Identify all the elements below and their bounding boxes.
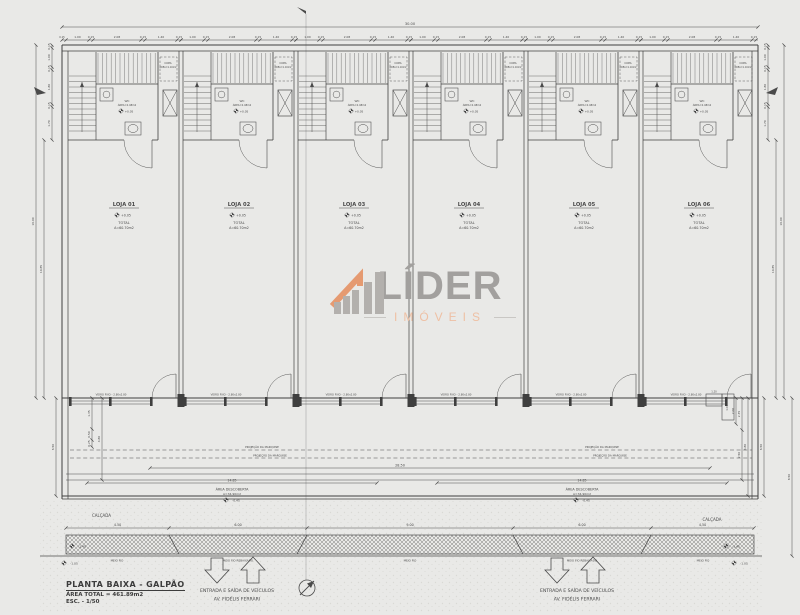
- drawing-title: PLANTA BAIXA - GALPÃO: [66, 580, 185, 591]
- floor-plan-drawing: WCÁREA=2.48m2+0.05COPAÁREA=1.10m2LOJA 01…: [0, 0, 800, 615]
- level-marker-icon: [575, 213, 580, 218]
- side-dim: 0.15: [47, 102, 51, 109]
- side-dim: 1.80: [47, 84, 51, 91]
- top-dim: 0.15: [548, 35, 555, 39]
- unit-loja-04-level: +0.05: [466, 213, 476, 217]
- wc-sink-bowl: [103, 91, 110, 98]
- level-marker-icon: [234, 109, 239, 114]
- side-dim: 0.15: [47, 65, 51, 72]
- side-dim: 2.50: [737, 452, 741, 459]
- top-dim: 0.15: [370, 35, 377, 39]
- unit-loja-01-window-label: VIDRO FIXO - 2.80x2.80: [96, 393, 127, 397]
- wc-door-arc: [124, 140, 152, 168]
- top-dim: 1.00: [534, 35, 541, 39]
- storefront-pillar: [293, 394, 300, 407]
- unit-loja-01-level: +0.05: [121, 213, 131, 217]
- curb-level: -1.45: [78, 545, 86, 549]
- top-dim: 0.15: [140, 35, 147, 39]
- side-dim: 0.15: [763, 102, 767, 109]
- top-dim: 0.15: [663, 35, 670, 39]
- sidewalk-dim: 4.50: [114, 523, 121, 527]
- window-mullion: [109, 397, 112, 406]
- entrance-label: ENTRADA E SAÍDA DE VEÍCULOS: [200, 587, 274, 594]
- window-mullion: [339, 397, 342, 406]
- top-dim: 0.15: [291, 35, 298, 39]
- unit-loja-02-name: LOJA 02: [228, 202, 251, 208]
- top-dim: 1.40: [503, 35, 510, 39]
- side-dim: 10.85: [771, 265, 775, 273]
- unit-loja-02-area: A=60.70m2: [229, 226, 249, 230]
- top-dim: 1.00: [74, 35, 81, 39]
- window-mullion: [150, 397, 153, 406]
- unit-loja-03-name: LOJA 03: [343, 202, 366, 208]
- curb-level: -1.45: [732, 545, 740, 549]
- unit-loja-06-wc-label: WC: [699, 99, 704, 103]
- unit-loja-02-level: +0.05: [236, 213, 246, 217]
- unit-loja-01-wc-label: WC: [124, 99, 129, 103]
- wc-door-arc: [469, 140, 497, 168]
- window-mullion: [265, 397, 268, 406]
- top-dim: 0.15: [59, 35, 65, 39]
- level-marker-icon: [690, 213, 695, 218]
- unit-loja-05-copa-area: ÁREA=1.10m2: [620, 66, 637, 69]
- side-dim: 1.70: [47, 120, 51, 127]
- side-dim: 0.25: [87, 440, 91, 447]
- entry-door-arc: [152, 374, 176, 398]
- side-dim: 4.80: [743, 444, 747, 451]
- dim-14-85: 14.85: [227, 478, 236, 482]
- wc-sink-bowl: [333, 91, 340, 98]
- window-mullion: [495, 397, 498, 406]
- top-dim: 1.40: [273, 35, 280, 39]
- top-dim: 0.15: [636, 35, 643, 39]
- stair-arrow-icon: [540, 82, 544, 87]
- side-dim: 0.15: [763, 43, 767, 50]
- drawing-scale: ESC. - 1/50: [66, 599, 185, 605]
- side-dim: 2.35: [737, 411, 741, 418]
- side-dim: 6.50: [759, 444, 763, 451]
- drawing-total-area: ÁREA TOTAL = 461.89m2: [66, 592, 185, 598]
- wc-sink: [215, 88, 228, 101]
- entry-door-arc: [727, 374, 751, 398]
- dim-28-50: 28.50: [395, 463, 405, 467]
- unit-loja-04-copa-label: COPA: [509, 61, 516, 65]
- stair-arrow-icon: [195, 82, 199, 87]
- side-dim: 1.35: [87, 410, 91, 417]
- top-dim: 1.40: [618, 35, 625, 39]
- side-dim: 0.15: [47, 43, 51, 50]
- wc-sink: [445, 88, 458, 101]
- unit-loja-05-window-label: VIDRO FIXO - 2.80x2.80: [556, 393, 587, 397]
- side-dim: 6.50: [51, 444, 55, 451]
- side-dim: 2.00: [731, 408, 735, 415]
- level-marker-icon: [230, 213, 235, 218]
- unit-loja-06-name: LOJA 06: [688, 202, 711, 208]
- wc-toilet: [585, 122, 601, 135]
- level-marker-icon: [349, 109, 354, 114]
- floor-plan-sheet: WCÁREA=2.48m2+0.05COPAÁREA=1.10m2LOJA 01…: [0, 0, 800, 615]
- unit-loja-04-total-label: TOTAL: [462, 221, 474, 225]
- storefront-pillar: [523, 394, 530, 407]
- unit-loja-06-copa-area: ÁREA=1.10m2: [735, 66, 752, 69]
- area-descoberta-value: A=34.90m2: [573, 492, 591, 496]
- level-marker-icon: [345, 213, 350, 218]
- unit-loja-05-name: LOJA 05: [573, 202, 596, 208]
- unit-loja-05-wc-label: WC: [584, 99, 589, 103]
- unit-loja-02-total-label: TOTAL: [232, 221, 244, 225]
- unit-loja-04-area: A=60.70m2: [459, 226, 479, 230]
- section-flag-top: [297, 7, 306, 14]
- entry-door-arc: [497, 374, 521, 398]
- window-mullion: [454, 397, 457, 406]
- top-dim: 1.00: [189, 35, 196, 39]
- window-mullion: [610, 397, 613, 406]
- top-dim: 0.15: [600, 35, 607, 39]
- calcada-right: CALÇADA: [702, 517, 721, 522]
- wc-toilet-bowl: [588, 125, 598, 133]
- wc-sink: [100, 88, 113, 101]
- side-dim: 0.15: [763, 65, 767, 72]
- area-descoberta-value: A=34.90m2: [223, 492, 241, 496]
- top-dim: 0.15: [433, 35, 440, 39]
- level-marker-icon: [464, 109, 469, 114]
- meio-fio-label: MEIO FIO: [697, 559, 711, 563]
- unit-loja-01-copa-area: ÁREA=1.10m2: [160, 66, 177, 69]
- top-dim: 0.15: [318, 35, 325, 39]
- window-mullion: [644, 397, 647, 406]
- top-dim: 0.15: [751, 35, 758, 39]
- side-dim: 16.00: [31, 217, 35, 225]
- wc-door-arc: [584, 140, 612, 168]
- storefront-pillar: [178, 394, 185, 407]
- window-mullion: [380, 397, 383, 406]
- level-marker-icon: [460, 213, 465, 218]
- wc-toilet: [700, 122, 716, 135]
- unit-loja-02-window-label: VIDRO FIXO - 2.80x2.80: [211, 393, 242, 397]
- level-marker-icon: [115, 213, 120, 218]
- calcada-left: CALÇADA: [92, 513, 111, 518]
- top-dim: 1.40: [158, 35, 165, 39]
- top-dim: 2.08: [344, 35, 351, 39]
- side-dim: 1.00: [47, 54, 51, 61]
- unit-loja-06-area: A=60.70m2: [689, 226, 709, 230]
- window-mullion: [69, 397, 72, 406]
- wc-sink-bowl: [678, 91, 685, 98]
- stair-arrow-icon: [80, 82, 84, 87]
- sidewalk-dim: 6.00: [578, 523, 585, 527]
- area-descoberta-label: ÁREA DESCOBERTA: [566, 487, 600, 492]
- unit-loja-06-window-label: VIDRO FIXO - 2.80x2.80: [671, 393, 702, 397]
- unit-loja-01-area: A=60.70m2: [114, 226, 134, 230]
- unit-loja-04-window-label: VIDRO FIXO - 2.80x2.80: [441, 393, 472, 397]
- wc-toilet: [355, 122, 371, 135]
- unit-loja-04-name: LOJA 04: [458, 202, 481, 208]
- meio-fio-label: MEIO FIO: [111, 559, 125, 563]
- storefront-pillar: [638, 394, 645, 407]
- window-mullion: [224, 397, 227, 406]
- top-dim: 2.08: [114, 35, 121, 39]
- top-dim: 2.08: [689, 35, 696, 39]
- wc-toilet: [470, 122, 486, 135]
- wc-toilet-bowl: [473, 125, 483, 133]
- window-mullion: [684, 397, 687, 406]
- top-dim: 0.15: [521, 35, 528, 39]
- side-dim: 1.00: [763, 54, 767, 61]
- unit-loja-04-copa-area: ÁREA=1.10m2: [505, 66, 522, 69]
- window-mullion: [184, 397, 187, 406]
- stair-arrow-icon: [310, 82, 314, 87]
- level-marker-icon: [119, 109, 124, 114]
- unit-loja-02-copa-label: COPA: [279, 61, 286, 65]
- marquise-label: PROJEÇÃO DA MARQUISE: [253, 453, 287, 458]
- sidewalk-dim: 4.50: [699, 523, 706, 527]
- area-descoberta-label: ÁREA DESCOBERTA: [216, 487, 250, 492]
- wc-toilet-bowl: [358, 125, 368, 133]
- level-marker-icon: [579, 109, 584, 114]
- side-dim: 1.20: [711, 390, 717, 394]
- stair-arrow-icon: [425, 82, 429, 87]
- unit-loja-02-wc-label: WC: [239, 99, 244, 103]
- unit-loja-06-copa-label: COPA: [739, 61, 746, 65]
- marquise-label: PROJEÇÃO DA MARQUISE: [585, 444, 619, 449]
- sidewalk-dim: 6.00: [234, 523, 241, 527]
- dim-14-85: 14.85: [577, 478, 586, 482]
- top-dim: 0.15: [88, 35, 95, 39]
- side-dim: 1.70: [763, 120, 767, 127]
- unit-loja-02-copa-area: ÁREA=1.10m2: [275, 66, 292, 69]
- unit-loja-03-copa-label: COPA: [394, 61, 401, 65]
- unit-loja-01-total-label: TOTAL: [117, 221, 129, 225]
- top-dim: 0.15: [255, 35, 262, 39]
- unit-loja-04-wc-label: WC: [469, 99, 474, 103]
- entrance-label: ENTRADA E SAÍDA DE VEÍCULOS: [540, 587, 614, 594]
- wc-door-arc: [699, 140, 727, 168]
- curb-level: -1.05: [70, 562, 78, 566]
- wc-toilet: [125, 122, 141, 135]
- unit-loja-05-level: +0.05: [581, 213, 591, 217]
- window-mullion: [725, 397, 728, 406]
- top-dim: 1.40: [733, 35, 740, 39]
- curb-level: -1.05: [740, 562, 748, 566]
- top-dim: 2.08: [229, 35, 236, 39]
- side-dim: 0.50: [87, 431, 91, 438]
- top-dim: 0.15: [406, 35, 413, 39]
- top-dim: 0.15: [203, 35, 210, 39]
- window-mullion: [529, 397, 532, 406]
- top-dim: 1.00: [419, 35, 426, 39]
- side-dim: 4.80: [97, 436, 101, 443]
- unit-loja-03-wc-level: +0.05: [355, 109, 364, 113]
- side-dim: 16.00: [779, 217, 783, 225]
- window-mullion: [299, 397, 302, 406]
- unit-loja-02-wc-level: +0.05: [240, 109, 249, 113]
- top-dim: 0.15: [485, 35, 492, 39]
- unit-loja-06-total-label: TOTAL: [692, 221, 704, 225]
- top-dim: 1.00: [649, 35, 656, 39]
- marquise-label: PROJEÇÃO DA MARQUISE: [593, 453, 627, 458]
- level-marker-icon: [694, 109, 699, 114]
- top-dim: 2.08: [459, 35, 466, 39]
- sidewalk-dim: 9.00: [406, 523, 413, 527]
- wc-sink-bowl: [563, 91, 570, 98]
- title-block: PLANTA BAIXA - GALPÃO ÁREA TOTAL = 461.8…: [66, 572, 185, 606]
- unit-loja-05-total-label: TOTAL: [577, 221, 589, 225]
- entry-door-arc: [382, 374, 406, 398]
- curb-strip: [66, 535, 754, 554]
- meio-fio-label: MEIO FIO: [404, 559, 418, 563]
- unit-loja-03-window-label: VIDRO FIXO - 2.80x2.80: [326, 393, 357, 397]
- unit-loja-06-wc-level: +0.05: [700, 109, 709, 113]
- wc-door-arc: [354, 140, 382, 168]
- wc-toilet: [240, 122, 256, 135]
- unit-loja-01-wc-level: +0.05: [125, 109, 134, 113]
- unit-loja-06-level: +0.05: [696, 213, 706, 217]
- dim-30-00: 30.00: [405, 22, 416, 26]
- wc-sink: [560, 88, 573, 101]
- unit-loja-03-total-label: TOTAL: [347, 221, 359, 225]
- wc-door-arc: [239, 140, 267, 168]
- wc-sink-bowl: [448, 91, 455, 98]
- unit-loja-05-copa-label: COPA: [624, 61, 631, 65]
- wc-sink-bowl: [218, 91, 225, 98]
- wc-toilet-bowl: [128, 125, 138, 133]
- entry-door-arc: [267, 374, 291, 398]
- unit-loja-03-area: A=60.70m2: [344, 226, 364, 230]
- unit-loja-03-copa-area: ÁREA=1.10m2: [390, 66, 407, 69]
- unit-loja-05-wc-level: +0.05: [585, 109, 594, 113]
- wc-toilet-bowl: [703, 125, 713, 133]
- marquise-label: PROJEÇÃO DA MARQUISE: [245, 444, 279, 449]
- top-dim: 0.15: [176, 35, 183, 39]
- wc-sink: [675, 88, 688, 101]
- unit-loja-03-wc-label: WC: [354, 99, 359, 103]
- unit-loja-01-name: LOJA 01: [113, 202, 136, 208]
- unit-loja-03-level: +0.05: [351, 213, 361, 217]
- side-dim: 1.00: [725, 405, 729, 411]
- top-dim: 1.40: [388, 35, 395, 39]
- wc-toilet-bowl: [243, 125, 253, 133]
- unit-loja-05-area: A=60.70m2: [574, 226, 594, 230]
- unit-loja-04-wc-level: +0.05: [470, 109, 479, 113]
- wc-sink: [330, 88, 343, 101]
- entry-door-arc: [612, 374, 636, 398]
- window-mullion: [569, 397, 572, 406]
- storefront-pillar: [408, 394, 415, 407]
- side-dim: 10.85: [39, 265, 43, 273]
- top-dim: 1.00: [304, 35, 311, 39]
- window-mullion: [414, 397, 417, 406]
- top-dim: 2.08: [574, 35, 581, 39]
- stair-arrow-icon: [655, 82, 659, 87]
- side-dim: 8.50: [787, 474, 791, 481]
- top-dim: 0.15: [715, 35, 722, 39]
- meio-fio-rebaixado-label: MEIO FIO REBAIXADO: [567, 559, 598, 563]
- unit-loja-01-copa-label: COPA: [164, 61, 171, 65]
- side-dim: 1.80: [763, 84, 767, 91]
